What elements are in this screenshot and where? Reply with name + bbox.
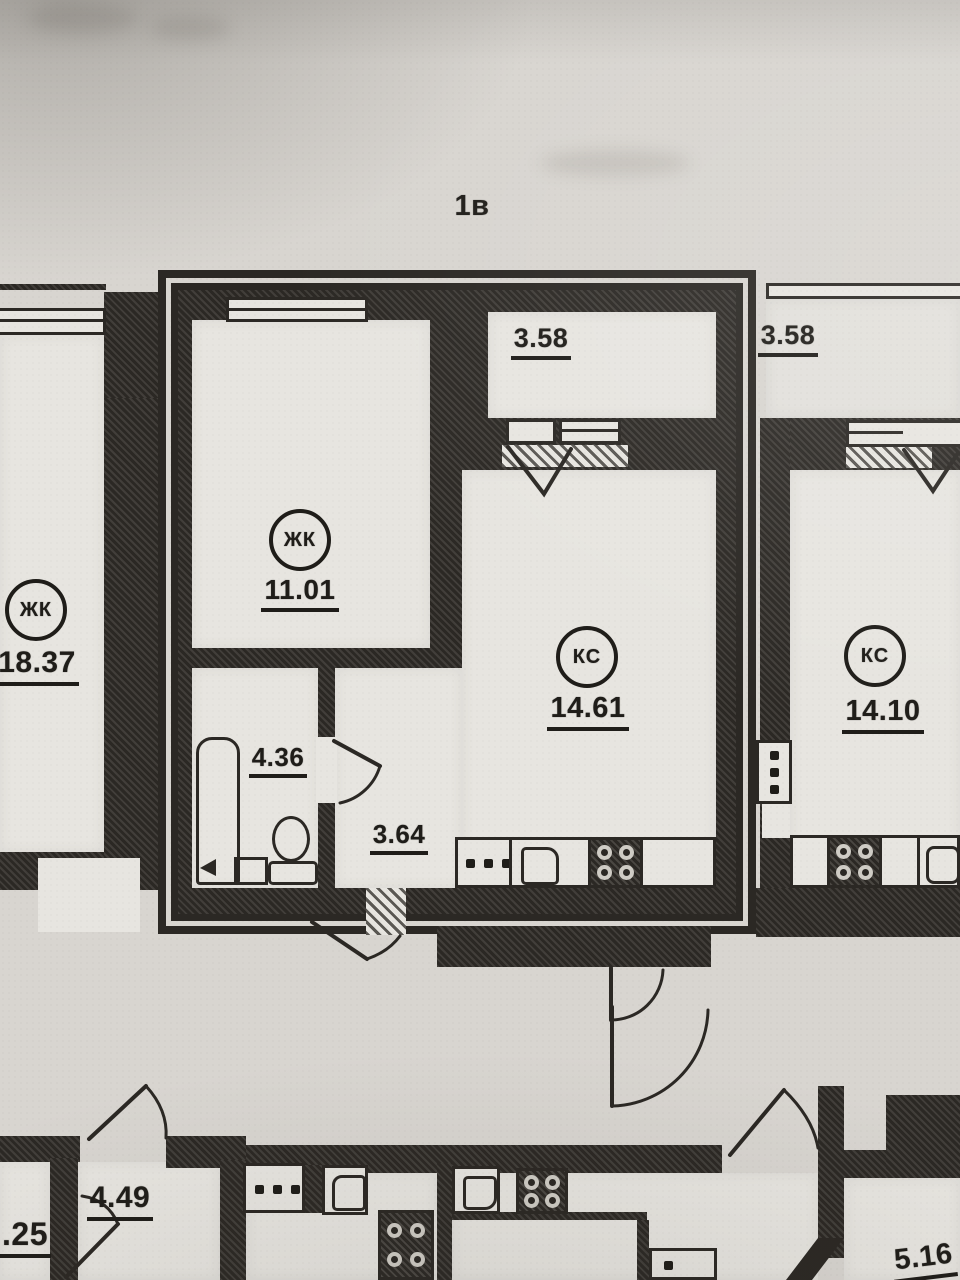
- entrance-door-opening: [366, 888, 406, 935]
- stove: [827, 835, 882, 888]
- stove: [378, 1210, 434, 1280]
- vent-dots-icon: [255, 1185, 300, 1194]
- room-area-label: .25: [0, 1218, 58, 1258]
- room-type-badge: ЖК: [5, 579, 67, 641]
- wall: [104, 398, 158, 890]
- wall: [437, 926, 711, 967]
- toilet-tank-icon: [268, 861, 318, 885]
- window-pane-line: [849, 431, 903, 434]
- wall: [104, 292, 158, 400]
- paper-smudge: [150, 16, 230, 40]
- window-pane-line: [562, 429, 618, 432]
- apartment-title: 1в: [446, 192, 498, 221]
- kitchen-counter: [879, 835, 920, 888]
- room-area-label: 4.49: [84, 1183, 156, 1221]
- wall: [886, 1095, 960, 1178]
- sink-basin-icon: [332, 1175, 366, 1211]
- bathroom-door-opening: [316, 737, 337, 803]
- window-sill-hatch: [846, 447, 932, 468]
- room-bottom-a: [78, 1162, 220, 1280]
- balcony-rail: [0, 284, 106, 290]
- room-bottom-middle: [452, 1173, 818, 1280]
- stove-burners-icon: [595, 844, 636, 881]
- wall: [303, 1165, 323, 1213]
- stove-burners-icon: [523, 1175, 561, 1207]
- stove-burners-icon: [834, 842, 875, 881]
- shaft-opening: [762, 804, 790, 838]
- paper-smudge: [28, 4, 138, 34]
- room-type-badge: КС: [556, 626, 618, 688]
- cabinet: [649, 1248, 717, 1280]
- kitchen-sink: [322, 1165, 368, 1215]
- room-balcony-right: [766, 299, 960, 418]
- wall: [818, 1086, 844, 1258]
- vent-dots-icon: [770, 751, 779, 794]
- window-pane-line: [0, 319, 103, 322]
- cabinet-knob-icon: [664, 1261, 673, 1270]
- room-area-label: 3.64: [368, 821, 430, 855]
- vent-panel: [455, 837, 512, 888]
- wall: [437, 1163, 452, 1280]
- sink-basin-icon: [463, 1176, 497, 1210]
- room-type-badge: ЖК: [269, 509, 331, 571]
- room-area-label: 14.61: [540, 694, 636, 731]
- kitchen-sink: [917, 835, 960, 888]
- room-area-label: 3.58: [510, 325, 572, 360]
- vent-panel: [756, 740, 792, 804]
- wall: [756, 888, 960, 937]
- room-hallway: [335, 668, 462, 888]
- kitchen-sink: [452, 1166, 500, 1214]
- vent-panel: [243, 1163, 305, 1213]
- stove: [588, 837, 643, 888]
- sink-basin-icon: [926, 846, 960, 884]
- floorplan-photo: 1в ЖК 18.37 3.58 ЖК 11.01 КС 1: [0, 0, 960, 1280]
- wash-basin-icon: [234, 857, 268, 885]
- kitchen-counter: [790, 835, 830, 888]
- doorway-niche: [38, 858, 140, 932]
- paper-smudge: [540, 150, 690, 176]
- balcony-door: [506, 419, 556, 444]
- toilet-bowl-icon: [272, 816, 310, 862]
- room-area-label: 3.58: [756, 322, 820, 357]
- partition-wall: [637, 1220, 649, 1280]
- stove-burners-icon: [385, 1217, 427, 1273]
- balcony-rail: [766, 283, 960, 299]
- room-area-label: 5.16: [884, 1239, 960, 1280]
- kitchen-counter: [640, 837, 716, 888]
- room-area-label: 4.36: [246, 744, 310, 778]
- room-area-label: 11.01: [256, 576, 344, 612]
- kitchen-sink: [509, 837, 591, 888]
- window-pane-line: [229, 308, 365, 311]
- room-area-label: 14.10: [836, 697, 930, 734]
- window-sill-hatch: [502, 445, 628, 467]
- vent-dots-icon: [466, 859, 511, 868]
- stove: [516, 1168, 568, 1214]
- room-area-label: 18.37: [0, 648, 80, 686]
- room-type-badge: КС: [844, 625, 906, 687]
- sink-basin-icon: [521, 847, 559, 885]
